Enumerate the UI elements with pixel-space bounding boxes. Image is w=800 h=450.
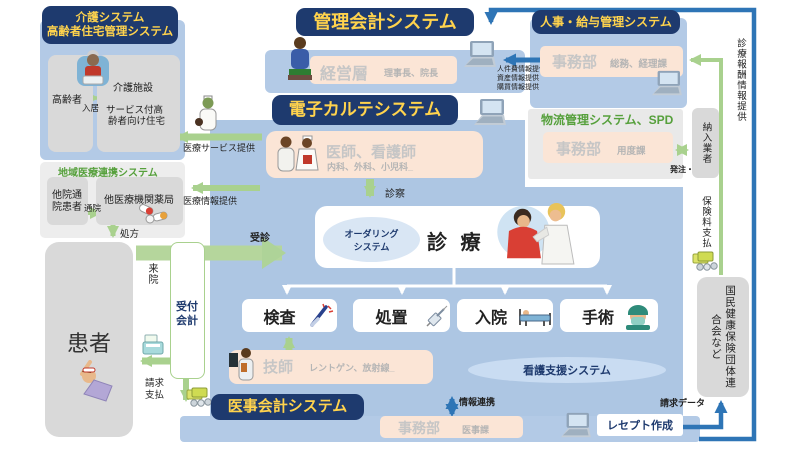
hr-dept-sub-label: 総務、経理課 — [610, 56, 667, 70]
insurer-label: 国民健康保険団体連合会など — [709, 285, 737, 389]
laptop-icon — [647, 70, 685, 98]
syringe-icon — [424, 305, 448, 329]
management-accounting-header: 管理会計システム — [296, 8, 474, 36]
executive-label: 経営層 — [320, 60, 368, 84]
laptop-icon — [556, 412, 594, 440]
laptop-icon — [460, 40, 498, 72]
logistics-dept-box: 事務部 用度課 — [543, 132, 673, 163]
nursing-support-ellipse: 看護支援システム — [468, 357, 666, 383]
technician-icon — [228, 347, 260, 385]
elderly-person-icon — [73, 50, 113, 90]
thermometer-icon — [308, 303, 334, 329]
medical-billing-title: 医事会計システム — [228, 398, 348, 417]
info-link-label: 情報連携 — [459, 395, 495, 408]
pills-icon — [136, 202, 170, 224]
insurer-box: 国民健康保険団体連合会など — [697, 277, 749, 397]
billing-dept-label: 事務部 — [398, 418, 440, 438]
care-title-line2: 高齢者住宅管理システム — [47, 25, 173, 39]
hr-payroll-header: 人事・給与管理システム — [532, 10, 680, 34]
billing-dept-sub-label: 医事課 — [462, 423, 489, 436]
supplier-label: 納入業者 — [699, 122, 713, 164]
hr-dept-label: 事務部 — [552, 51, 597, 72]
billing-pay-line2: 支払 — [145, 387, 164, 401]
medical-billing-header: 医事会計システム — [211, 394, 364, 420]
ordering-line1: オーダリング — [344, 227, 398, 240]
nyuin-label: 入院 — [475, 304, 507, 328]
care-system-header: 介護システム 高齢者住宅管理システム — [42, 6, 178, 44]
patient-in-bed-icon — [70, 360, 115, 402]
cash-register-icon — [141, 332, 165, 356]
facility-label: 介護施設 — [113, 79, 153, 94]
emr-header: 電子カルテシステム — [272, 95, 458, 125]
logistics-title: 物流管理システム、SPD — [541, 111, 673, 128]
supplier-box: 納入業者 — [692, 108, 719, 178]
elderly-label: 高齢者 — [52, 91, 82, 106]
nurse-icon — [193, 95, 223, 135]
executive-box: 経営層 理事長、院長 — [310, 56, 457, 84]
shujutsu-label: 手術 — [582, 304, 614, 328]
kensa-label: 検査 — [263, 304, 295, 328]
reception-line2: 会計 — [176, 312, 198, 328]
ordering-line2: システム — [354, 240, 390, 253]
examination-label: 診察 — [385, 185, 405, 200]
shochi-label: 処置 — [375, 304, 407, 328]
prescription-label: 処方 — [120, 226, 139, 240]
money-icon — [692, 251, 720, 271]
hospital-system-diagram: 介護システム 高齢者住宅管理システム 管理会計システム 人事・給与管理システム … — [0, 0, 800, 450]
receipt-label: レセプト作成 — [607, 417, 673, 433]
other-patient-line2: 院患者 — [52, 198, 82, 213]
surgeon-icon — [624, 302, 652, 330]
hr-payroll-title: 人事・給与管理システム — [540, 15, 672, 30]
move-in-label: 入居 — [82, 102, 99, 114]
nursing-support-label: 看護支援システム — [523, 362, 611, 378]
technician-label: 技師 — [263, 356, 293, 377]
consultation-label: 受診 — [250, 229, 270, 244]
medical-info-label: 医療情報提供 — [183, 194, 237, 207]
patient-label: 患者 — [67, 326, 111, 358]
money-icon — [186, 387, 214, 407]
staff-label: 医師、看護師 — [326, 141, 416, 162]
doctor-nurse-icon — [272, 135, 322, 177]
hr-info-line3: 購買情報提供 — [497, 82, 539, 92]
executive-icon — [287, 36, 313, 82]
housing-label-line2: 齢者向け住宅 — [108, 113, 165, 127]
emr-title: 電子カルテシステム — [289, 99, 442, 120]
visit-hospital-label: 来院 — [144, 263, 159, 291]
medical-service-label: 医療サービス提供 — [183, 141, 255, 154]
logistics-dept-sub-label: 用度課 — [617, 143, 646, 157]
premium-label: 保険料支払 — [698, 196, 712, 250]
technician-sub-label: レントゲン、放射線_ — [309, 361, 394, 374]
examination-illustration — [495, 201, 583, 265]
billing-dept-box: 事務部 医事課 — [380, 416, 523, 438]
executive-sub-label: 理事長、院長 — [384, 66, 438, 79]
hospital-bed-icon — [518, 305, 552, 329]
management-accounting-title: 管理会計システム — [313, 11, 456, 34]
clinic-label: 診 療 — [427, 226, 485, 255]
receipt-box: レセプト作成 — [597, 414, 683, 436]
visit-other-clinic-label: 通院 — [84, 202, 101, 214]
ordering-system-ellipse: オーダリング システム — [323, 217, 420, 262]
logistics-dept-label: 事務部 — [556, 138, 601, 159]
laptop-icon — [470, 98, 508, 128]
care-title-line1: 介護システム — [76, 11, 145, 25]
staff-sub-label: 内科、外科、小児科_ — [327, 160, 413, 173]
fee-info-label: 診療報酬情報提供 — [733, 38, 747, 128]
claim-data-label: 請求データ — [660, 396, 705, 409]
